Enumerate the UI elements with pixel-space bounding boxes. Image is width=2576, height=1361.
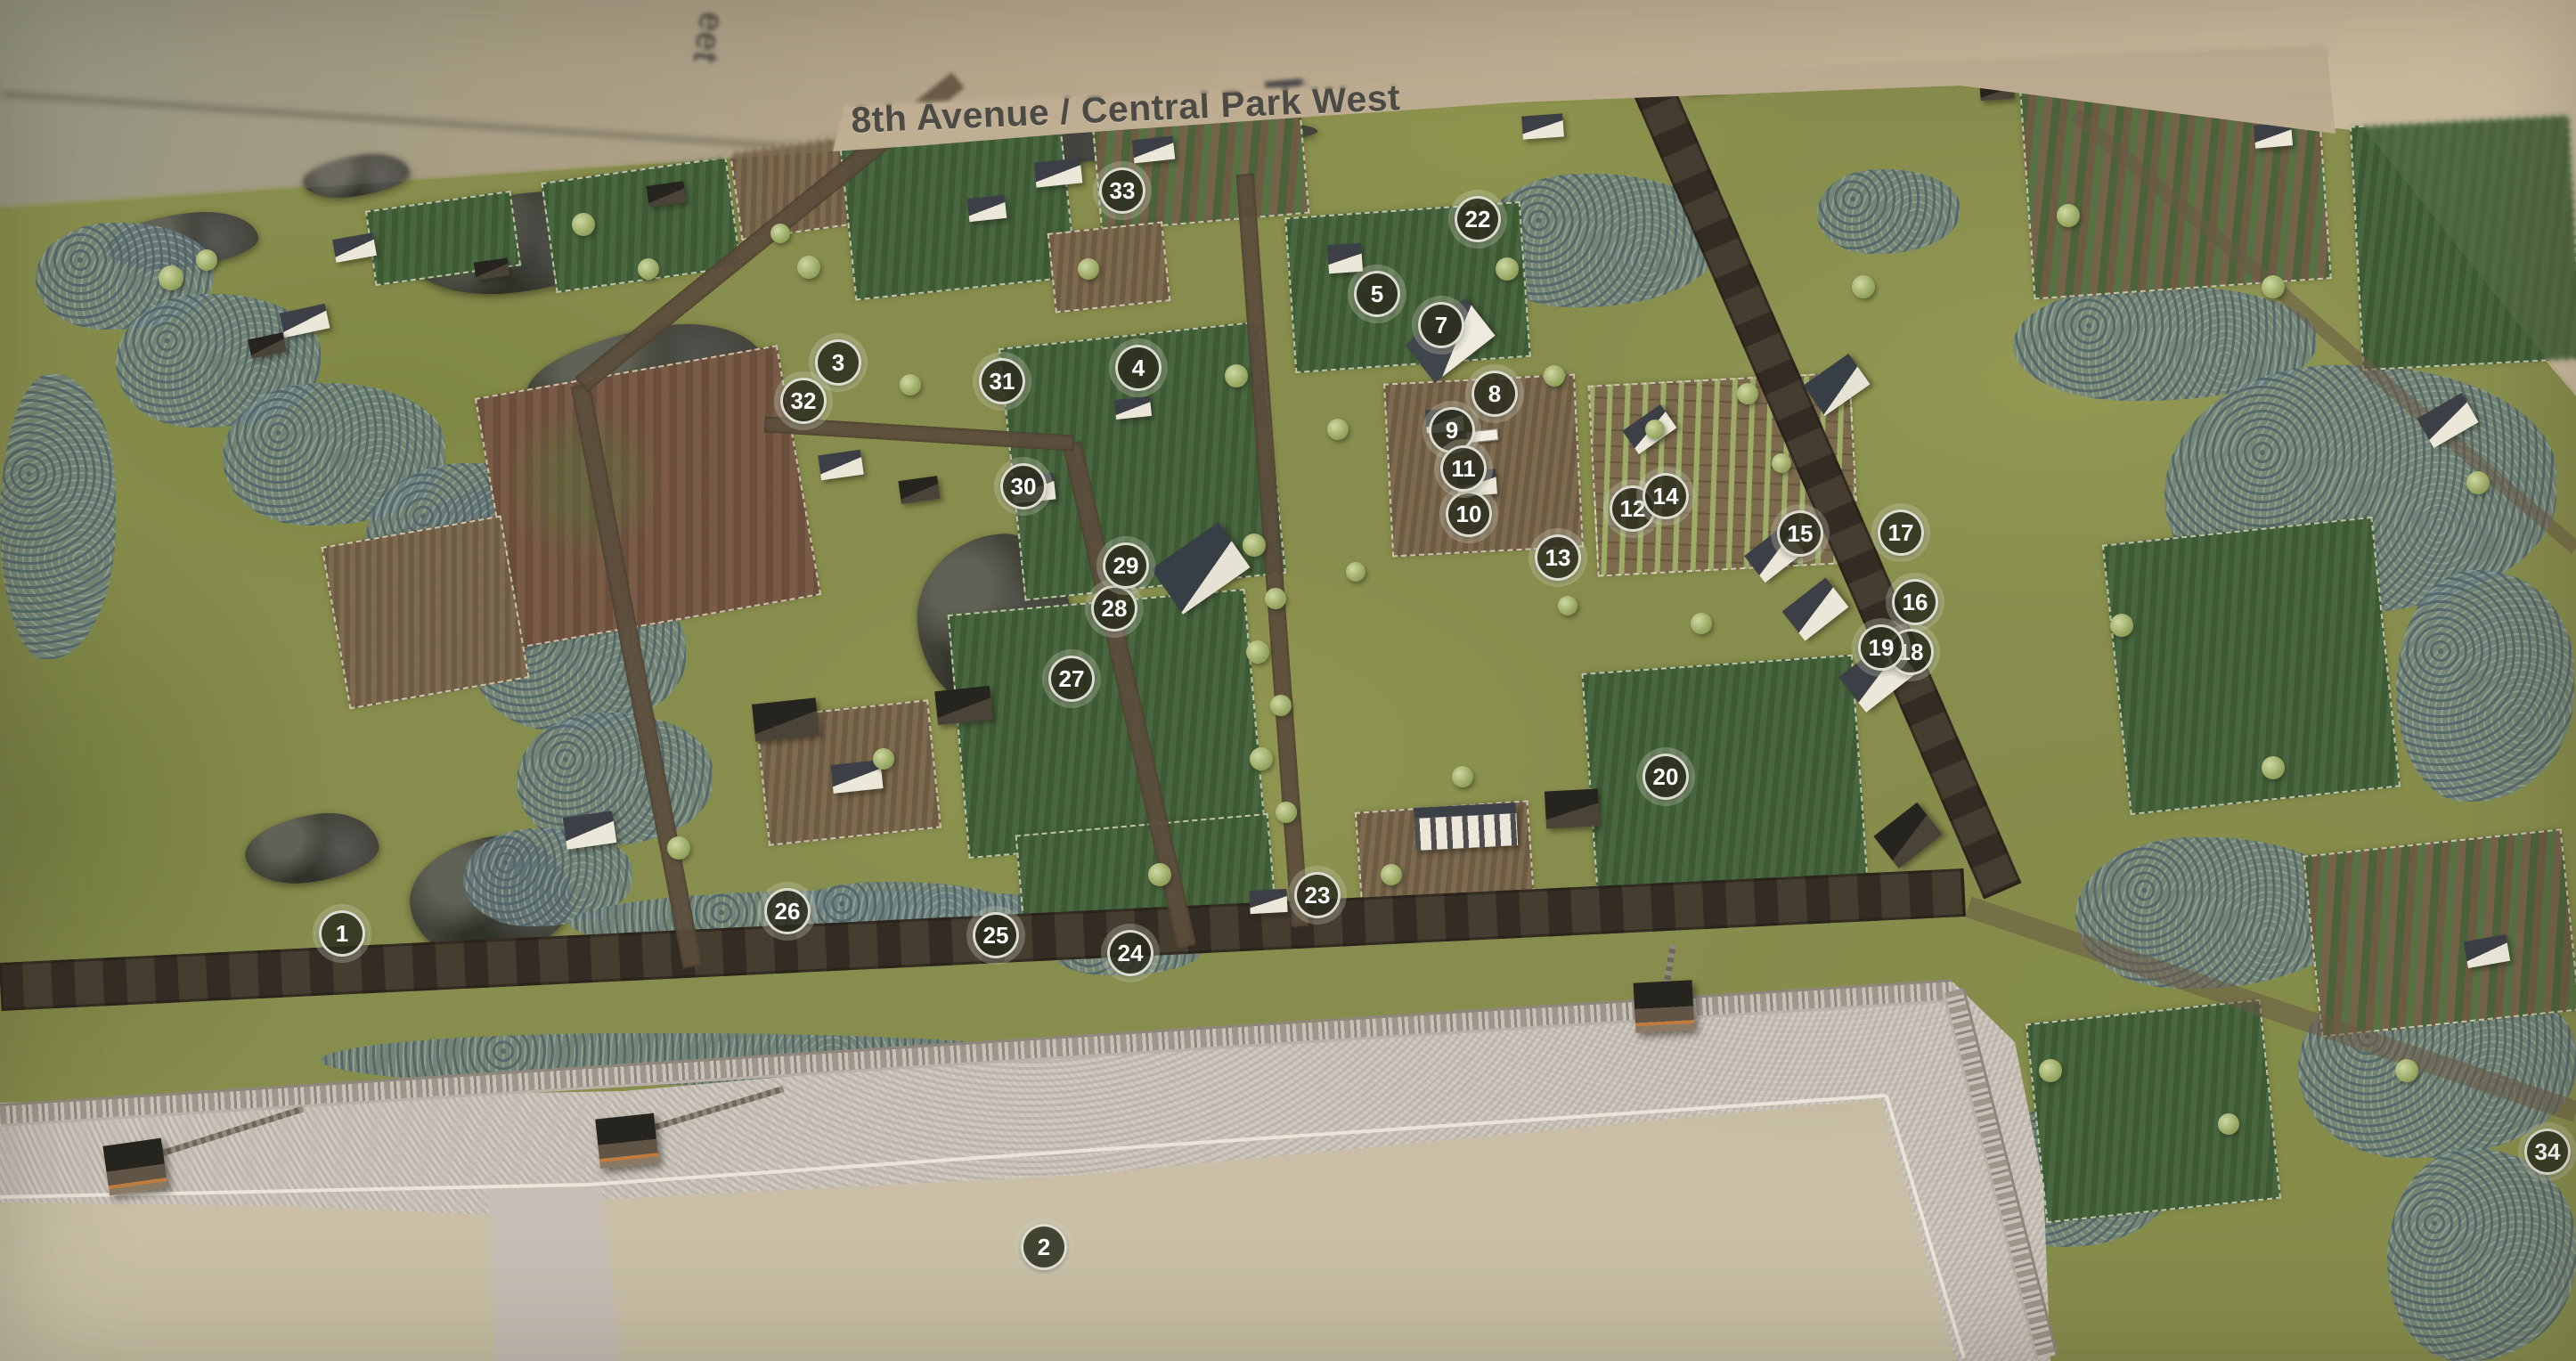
map-marker-7[interactable]: 7: [1418, 302, 1464, 348]
map-marker-1[interactable]: 1: [319, 910, 365, 957]
tree: [572, 213, 595, 236]
map-viewport[interactable]: 8th Avenue / Central Park West eet 12345…: [0, 0, 2576, 1361]
map-marker-32[interactable]: 32: [780, 378, 827, 424]
map-marker-26[interactable]: 26: [764, 888, 811, 934]
tree: [1691, 613, 1712, 634]
building: [934, 686, 993, 725]
tree: [1772, 453, 1791, 473]
farm-plot: [2026, 999, 2281, 1223]
tree: [1852, 275, 1875, 298]
tree: [1276, 802, 1297, 823]
map-marker-16[interactable]: 16: [1892, 579, 1938, 625]
tree: [1265, 588, 1286, 609]
map-marker-33[interactable]: 33: [1099, 167, 1145, 214]
tree: [1381, 864, 1402, 885]
terrain-edge-shadow: [2, 91, 837, 153]
building: [1545, 788, 1600, 828]
map-marker-17[interactable]: 17: [1878, 509, 1924, 556]
gatehouse: [1634, 980, 1695, 1032]
tree: [1558, 596, 1577, 615]
map-marker-13[interactable]: 13: [1535, 534, 1581, 581]
tree: [1452, 766, 1473, 787]
map-marker-15[interactable]: 15: [1777, 510, 1823, 557]
building: [1114, 396, 1152, 420]
farm-plot: [2303, 828, 2576, 1037]
map-marker-24[interactable]: 24: [1107, 930, 1153, 976]
map-marker-29[interactable]: 29: [1103, 542, 1149, 589]
farm-plot: [2350, 115, 2576, 371]
map-marker-31[interactable]: 31: [979, 358, 1025, 404]
tree: [1645, 420, 1665, 439]
tree: [159, 265, 183, 290]
tree: [667, 836, 690, 860]
building: [967, 195, 1007, 222]
map-marker-22[interactable]: 22: [1455, 196, 1501, 242]
map-marker-28[interactable]: 28: [1091, 585, 1137, 632]
map-marker-30[interactable]: 30: [1000, 463, 1047, 509]
map-marker-19[interactable]: 19: [1858, 624, 1904, 671]
tree: [797, 256, 820, 279]
building: [1249, 889, 1287, 914]
map-marker-14[interactable]: 14: [1643, 473, 1689, 519]
tree: [1243, 534, 1266, 557]
farm-plot: [1048, 221, 1171, 313]
tree: [2039, 1059, 2062, 1082]
tree: [1148, 863, 1171, 886]
tree: [1246, 640, 1269, 664]
map-marker-20[interactable]: 20: [1643, 754, 1689, 800]
building: [1327, 243, 1363, 274]
tree: [1544, 365, 1565, 387]
tree: [770, 224, 790, 243]
map-marker-34[interactable]: 34: [2524, 1129, 2571, 1175]
building: [1413, 803, 1517, 851]
tree: [900, 374, 921, 395]
farm-plot: [321, 516, 529, 710]
tree: [2395, 1059, 2418, 1082]
gatehouse: [595, 1113, 658, 1169]
street-label-fragment: eet: [684, 9, 731, 66]
building: [1034, 158, 1083, 187]
tree: [873, 748, 894, 770]
farm-plot: [2102, 517, 2401, 815]
map-marker-8[interactable]: 8: [1471, 371, 1518, 417]
tree: [2466, 471, 2490, 494]
map-marker-5[interactable]: 5: [1354, 271, 1400, 317]
tree: [1078, 258, 1099, 280]
tree: [2110, 614, 2133, 637]
map-marker-3[interactable]: 3: [815, 339, 861, 386]
tree: [1270, 695, 1292, 716]
tree: [2057, 204, 2080, 227]
building: [1132, 136, 1175, 164]
tree: [638, 258, 659, 280]
tree: [196, 249, 217, 271]
map-marker-2[interactable]: 2: [1021, 1224, 1067, 1270]
gatehouse: [102, 1138, 167, 1196]
building: [563, 811, 616, 849]
map-marker-10[interactable]: 10: [1446, 491, 1492, 537]
map-marker-25[interactable]: 25: [973, 912, 1019, 958]
farm-plot: [475, 345, 821, 648]
map-marker-27[interactable]: 27: [1048, 656, 1095, 702]
map-marker-11[interactable]: 11: [1440, 445, 1487, 492]
tree: [1250, 747, 1273, 770]
tree: [1346, 562, 1365, 582]
tree: [2262, 275, 2285, 298]
map-marker-4[interactable]: 4: [1115, 345, 1162, 391]
tree: [1737, 383, 1758, 404]
tree: [1225, 364, 1248, 387]
building: [752, 697, 819, 741]
building: [1521, 113, 1564, 139]
map-marker-23[interactable]: 23: [1294, 872, 1341, 918]
tree: [1327, 419, 1349, 440]
tree: [2262, 756, 2285, 779]
tree: [1496, 257, 1519, 281]
tree: [2218, 1113, 2239, 1135]
